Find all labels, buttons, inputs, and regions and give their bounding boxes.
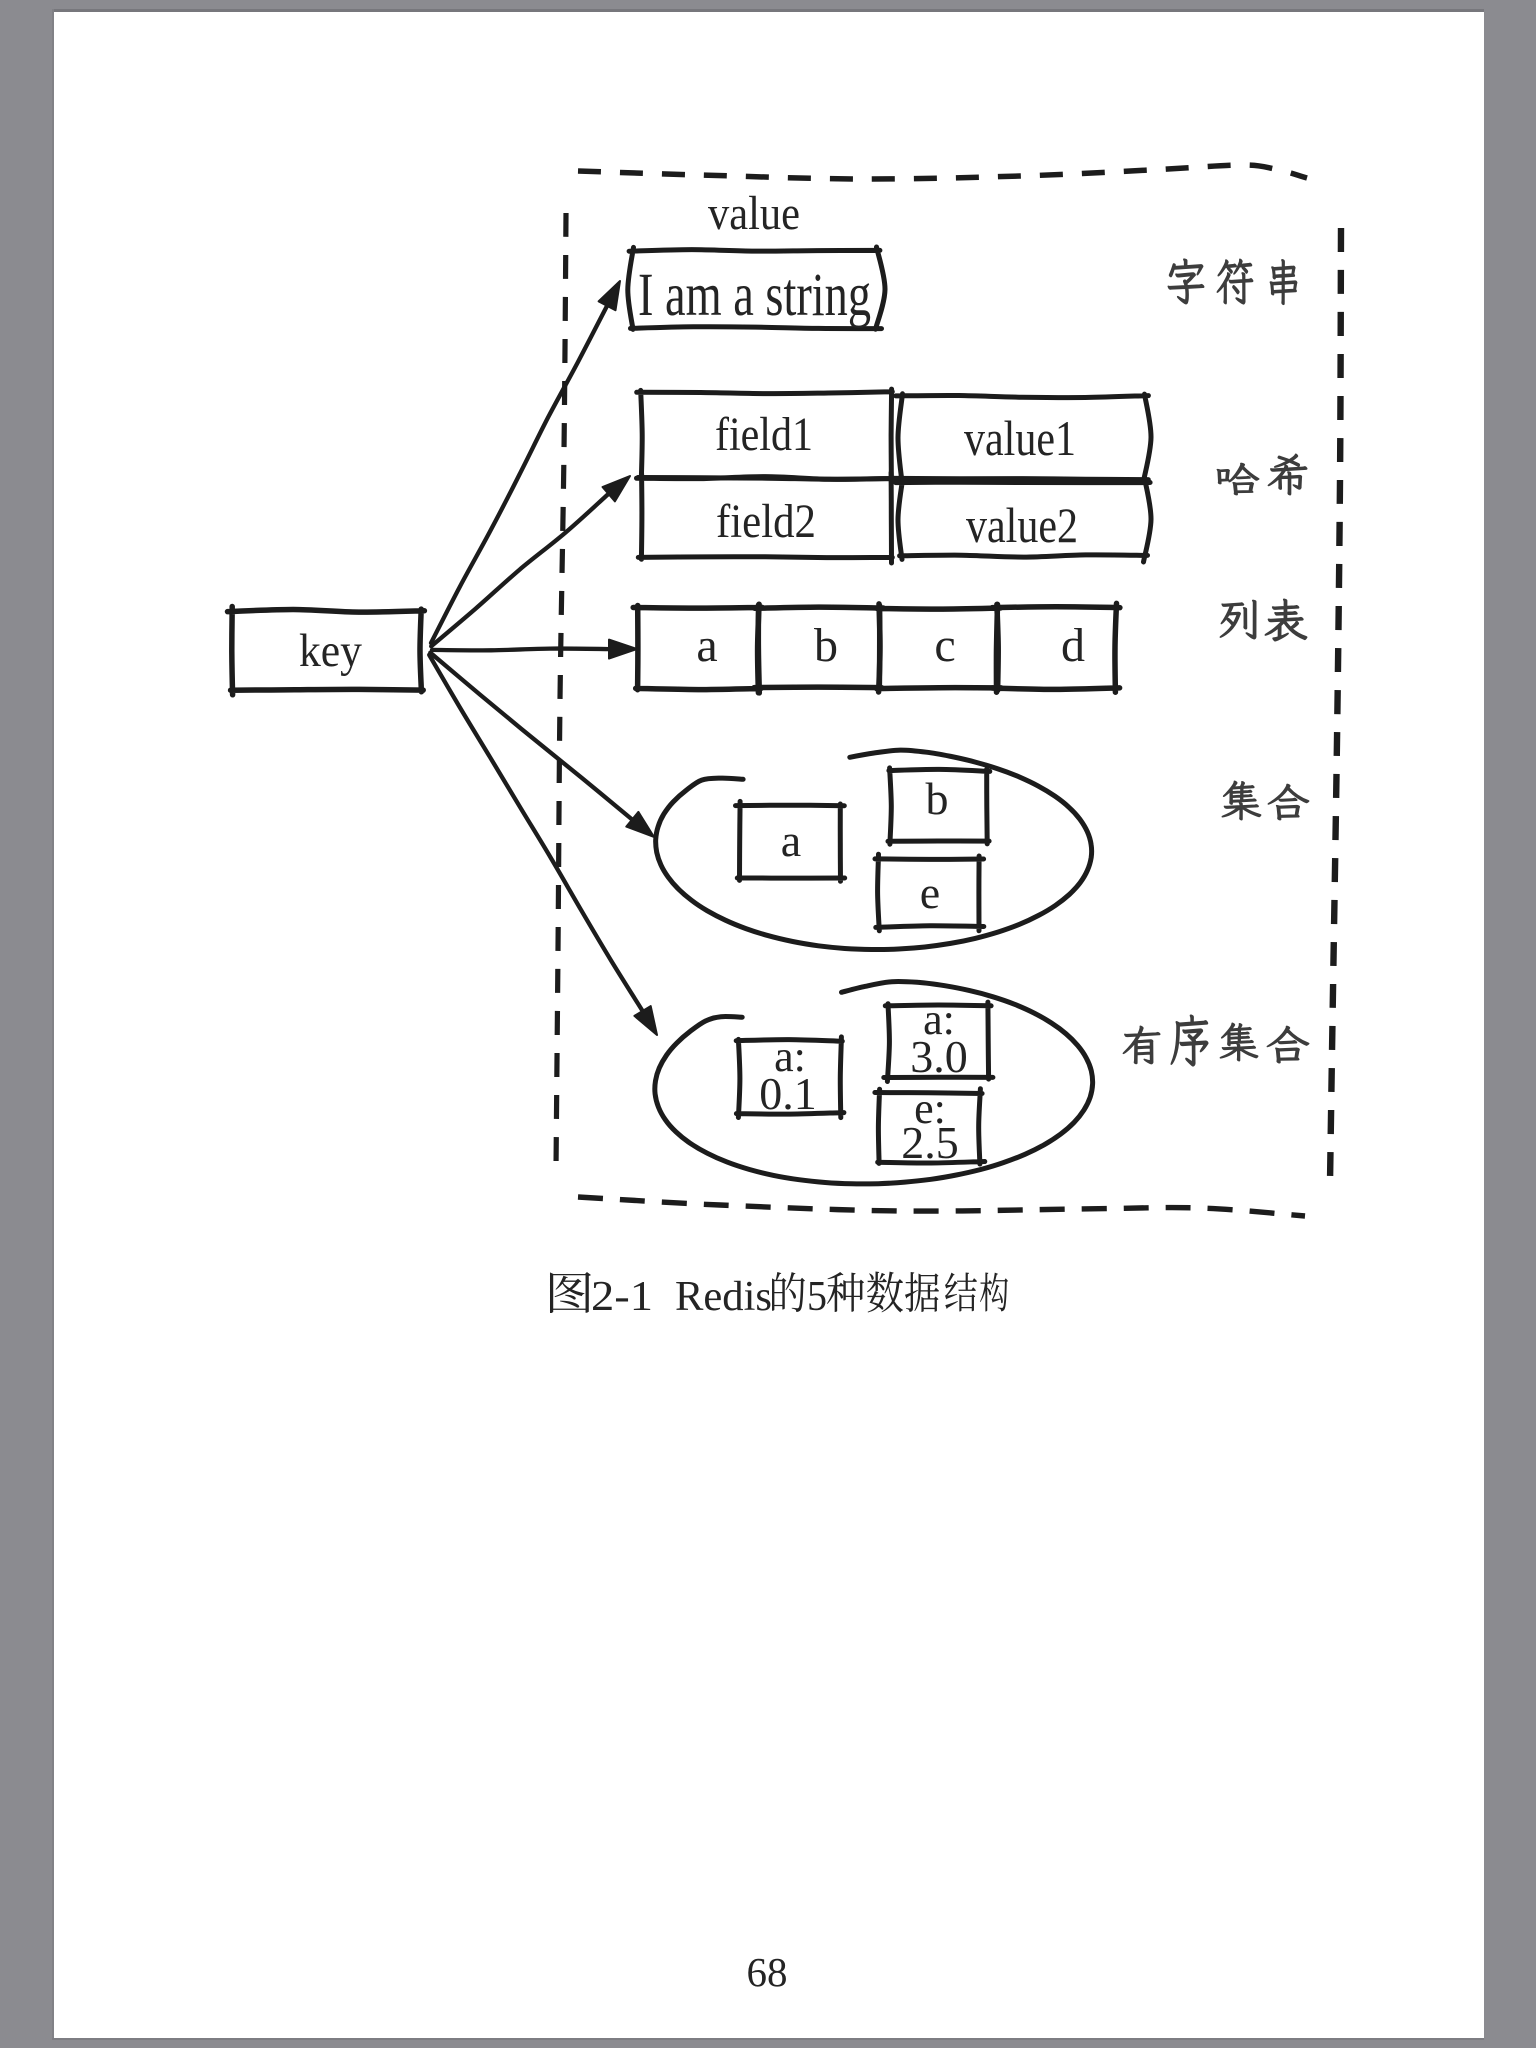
- svg-text:3.0: 3.0: [910, 1031, 968, 1082]
- svg-text:field1: field1: [715, 408, 813, 461]
- svg-text:value1: value1: [964, 410, 1076, 466]
- svg-text:field2: field2: [716, 495, 816, 548]
- svg-text:I am a string: I am a string: [638, 262, 871, 329]
- svg-text:c: c: [934, 619, 955, 672]
- svg-text:Redis: Redis: [675, 1274, 772, 1320]
- svg-text:e: e: [920, 867, 940, 918]
- svg-text:2.5: 2.5: [901, 1117, 959, 1168]
- svg-text:b: b: [926, 773, 949, 824]
- svg-text:value2: value2: [966, 497, 1078, 553]
- svg-text:b: b: [814, 619, 838, 672]
- svg-text:0.1: 0.1: [759, 1068, 817, 1119]
- svg-text:value: value: [708, 187, 800, 240]
- svg-text:5: 5: [807, 1274, 827, 1320]
- svg-text:a: a: [781, 815, 801, 866]
- svg-text:2-1: 2-1: [591, 1274, 653, 1320]
- svg-text:68: 68: [747, 1949, 788, 1995]
- svg-text:a: a: [696, 619, 717, 672]
- svg-text:key: key: [299, 625, 362, 677]
- svg-text:d: d: [1061, 619, 1085, 672]
